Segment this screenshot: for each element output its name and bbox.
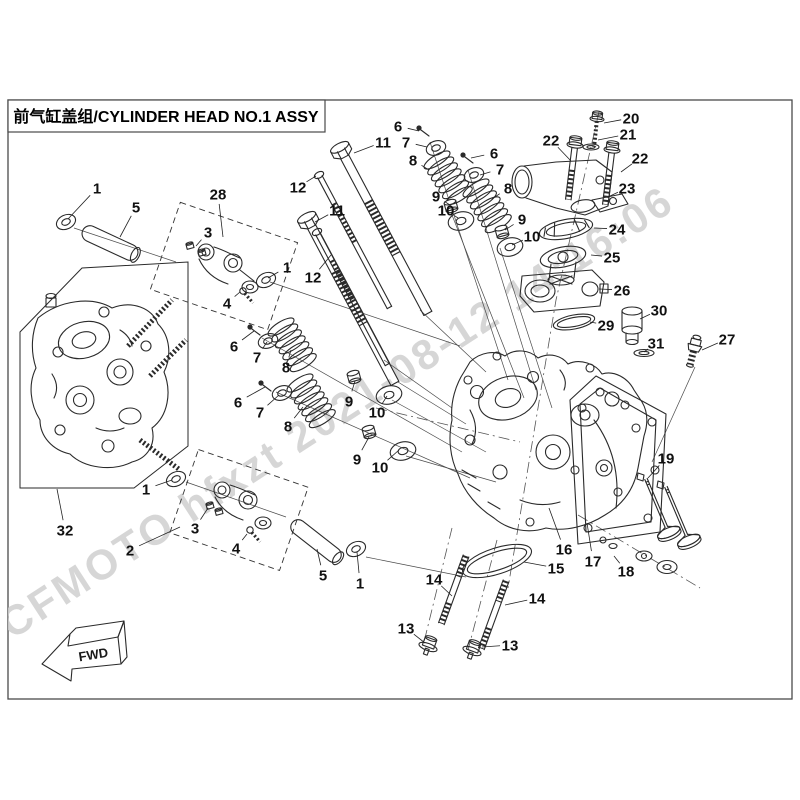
callout-27: 27: [719, 331, 736, 348]
bolt-20: [587, 110, 605, 147]
o-ring-15: [459, 538, 536, 585]
diagram-title: 前气缸盖组/CYLINDER HEAD NO.1 ASSY: [13, 107, 319, 126]
callout-7: 7: [256, 404, 264, 421]
assembled-head-32: [20, 262, 188, 488]
shaft-5-bottom: [288, 517, 346, 567]
callout-32: 32: [57, 522, 74, 539]
leader-line: [414, 634, 425, 643]
callout-6: 6: [234, 394, 242, 411]
callout-8: 8: [282, 359, 290, 376]
leader-line: [621, 164, 632, 172]
callout-22: 22: [543, 132, 560, 149]
leader-line: [594, 228, 607, 229]
callout-10: 10: [524, 228, 541, 245]
callout-9: 9: [345, 393, 353, 410]
callout-29: 29: [598, 317, 615, 334]
callout-3: 3: [191, 520, 199, 537]
callout-31: 31: [648, 335, 665, 352]
washer-21: [583, 144, 599, 150]
leader-line: [247, 387, 265, 397]
callout-13: 13: [398, 620, 415, 637]
leader-line: [524, 562, 546, 566]
callout-10: 10: [438, 202, 455, 219]
washer-1d: [344, 538, 368, 559]
flange-bolt-13a: [416, 633, 440, 658]
callout-12: 12: [290, 179, 307, 196]
callout-14: 14: [426, 571, 443, 588]
callout-3: 3: [204, 224, 212, 241]
stud-14a: [439, 555, 469, 625]
leader-line: [604, 120, 621, 123]
leader-line: [196, 240, 201, 246]
callout-16: 16: [556, 541, 573, 558]
leader-line: [512, 240, 523, 245]
leader-line: [263, 342, 267, 349]
leader-line: [120, 216, 131, 237]
leader-line: [155, 480, 172, 486]
callout-21: 21: [620, 126, 637, 143]
callout-7: 7: [402, 134, 410, 151]
callout-9: 9: [353, 451, 361, 468]
callout-30: 30: [651, 302, 668, 319]
callout-14: 14: [529, 590, 546, 607]
callout-11: 11: [329, 202, 345, 219]
callout-20: 20: [623, 110, 640, 127]
leader-line: [558, 147, 571, 161]
callout-2: 2: [126, 542, 134, 559]
temp-sensor-27: [683, 334, 704, 369]
callout-4: 4: [223, 295, 232, 312]
bolt-22a: [560, 135, 584, 201]
cylinder-head-16: [450, 351, 647, 531]
callout-23: 23: [619, 180, 636, 197]
washer-1a: [54, 211, 78, 232]
callout-25: 25: [604, 249, 621, 266]
callout-8: 8: [409, 152, 417, 169]
callout-6: 6: [394, 118, 402, 135]
leader-line: [242, 331, 254, 340]
callout-1: 1: [283, 259, 291, 276]
leader-line: [549, 508, 561, 540]
callout-7: 7: [253, 349, 261, 366]
leader-line: [319, 255, 331, 269]
callout-8: 8: [284, 418, 292, 435]
leader-line: [68, 195, 90, 219]
leader-line: [587, 523, 591, 551]
callout-26: 26: [614, 282, 631, 299]
callout-6: 6: [230, 338, 238, 355]
valve-seat-parts-18: [600, 537, 677, 574]
callout-10: 10: [369, 404, 386, 421]
callout-18: 18: [618, 563, 635, 580]
callout-12: 12: [305, 269, 322, 286]
leader-line: [614, 556, 620, 563]
fwd-label: FWD: [78, 645, 110, 664]
leader-line: [219, 204, 223, 237]
leader-line: [471, 155, 484, 158]
diagram-border: [8, 100, 792, 699]
leader-line: [242, 534, 247, 540]
leader-line: [480, 172, 490, 175]
leader-line: [599, 289, 612, 290]
plug-30: [622, 307, 642, 345]
callout-7: 7: [496, 161, 504, 178]
callout-28: 28: [210, 186, 227, 203]
leader-line: [416, 144, 427, 147]
exploded-diagram: 前气缸盖组/CYLINDER HEAD NO.1 ASSY CFMOTO hfx…: [0, 0, 800, 800]
callout-15: 15: [548, 560, 565, 577]
valve-a: [635, 474, 683, 544]
callout-1: 1: [142, 481, 150, 498]
leader-line: [598, 136, 618, 140]
callout-4: 4: [232, 540, 241, 557]
callout-8: 8: [504, 180, 512, 197]
callout-6: 6: [490, 145, 498, 162]
callout-13: 13: [502, 637, 519, 654]
leader-line: [307, 176, 316, 182]
leader-line: [57, 489, 63, 520]
callout-24: 24: [609, 221, 626, 238]
callout-19: 19: [658, 450, 675, 467]
stud-12a: [313, 170, 394, 310]
shaft-5-top: [79, 223, 142, 264]
o-ring-29: [552, 311, 596, 333]
callout-5: 5: [132, 199, 140, 216]
leader-line: [235, 292, 240, 297]
leader-line: [702, 343, 718, 350]
callout-1: 1: [93, 180, 101, 197]
callout-17: 17: [585, 553, 602, 570]
leader-line: [354, 146, 374, 153]
callout-9: 9: [518, 211, 526, 228]
fwd-arrow: FWD: [42, 621, 127, 681]
parts-diagram-page: 前气缸盖组/CYLINDER HEAD NO.1 ASSY CFMOTO hfx…: [0, 0, 800, 800]
leader-line: [317, 549, 321, 565]
callout-10: 10: [372, 459, 389, 476]
callout-22: 22: [632, 150, 649, 167]
callout-5: 5: [319, 567, 327, 584]
callout-11: 11: [375, 134, 391, 151]
callout-1: 1: [356, 575, 364, 592]
leader-line: [505, 600, 527, 605]
